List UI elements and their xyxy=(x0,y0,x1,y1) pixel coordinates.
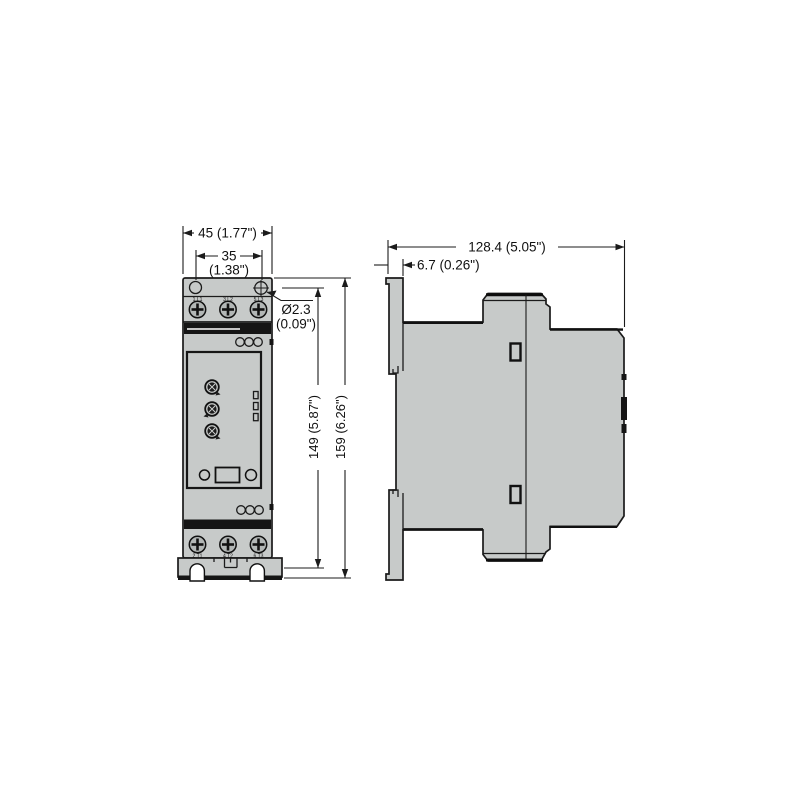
terminal-screw xyxy=(189,536,205,552)
side-tab-tick xyxy=(270,339,274,345)
dim-front-offset: 6.7 (0.26") xyxy=(374,258,480,277)
terminal-label-top-3: 5 L3 xyxy=(254,297,264,303)
dim-hole-dia: Ø2.3 (0.09") xyxy=(267,291,316,332)
rear-clip-mark xyxy=(622,424,627,433)
drawing-canvas: 1 L1 3 L2 5 L3 xyxy=(0,0,800,800)
dim-total-height-label: 159 (6.26") xyxy=(333,395,348,459)
terminal-screw xyxy=(220,301,236,317)
side-tab-tick xyxy=(270,504,274,510)
terminal-label-top-2: 3 L2 xyxy=(223,297,233,303)
rear-clip-mark xyxy=(622,374,627,380)
terminal-screws-top xyxy=(189,301,266,317)
terminal-screw xyxy=(189,301,205,317)
dim-hole-pitch: 35 (1.38") xyxy=(196,249,262,281)
adjustment-knob xyxy=(204,402,219,417)
dim-depth-label: 128.4 (5.05") xyxy=(468,240,546,255)
terminal-label-bottom-1: 2 T1 xyxy=(193,554,203,560)
dim-front-offset-label: 6.7 (0.26") xyxy=(417,258,480,273)
side-view xyxy=(386,278,627,580)
flange-slot-left xyxy=(190,564,204,581)
terminal-label-bottom-3: 6 T3 xyxy=(254,554,264,560)
adjustment-knob xyxy=(205,424,220,439)
dim-hole-dia-label: Ø2.3 xyxy=(281,302,310,317)
label-band-bottom xyxy=(184,520,271,530)
terminal-label-bottom-2: 4 T2 xyxy=(223,554,233,560)
terminal-screws-bottom xyxy=(189,536,266,552)
technical-drawing: 1 L1 3 L2 5 L3 xyxy=(0,0,800,800)
terminal-label-top-1: 1 L1 xyxy=(193,297,203,303)
front-view: 1 L1 3 L2 5 L3 xyxy=(178,278,282,581)
terminal-screw xyxy=(250,301,266,317)
adjustment-knobs xyxy=(204,380,221,439)
adjustment-knob xyxy=(205,380,220,395)
dim-mount-height-label: 149 (5.87") xyxy=(306,395,321,459)
dim-hole-pitch-label: 35 xyxy=(221,249,236,264)
dim-hole-pitch-inch-label: (1.38") xyxy=(209,263,249,278)
terminal-screw xyxy=(220,536,236,552)
terminal-screw xyxy=(250,536,266,552)
flange-slot-right xyxy=(250,564,264,581)
dim-hole-dia-inch-label: (0.09") xyxy=(276,317,316,332)
rear-clip-mark xyxy=(621,397,627,420)
dim-front-width-label: 45 (1.77") xyxy=(198,226,257,241)
